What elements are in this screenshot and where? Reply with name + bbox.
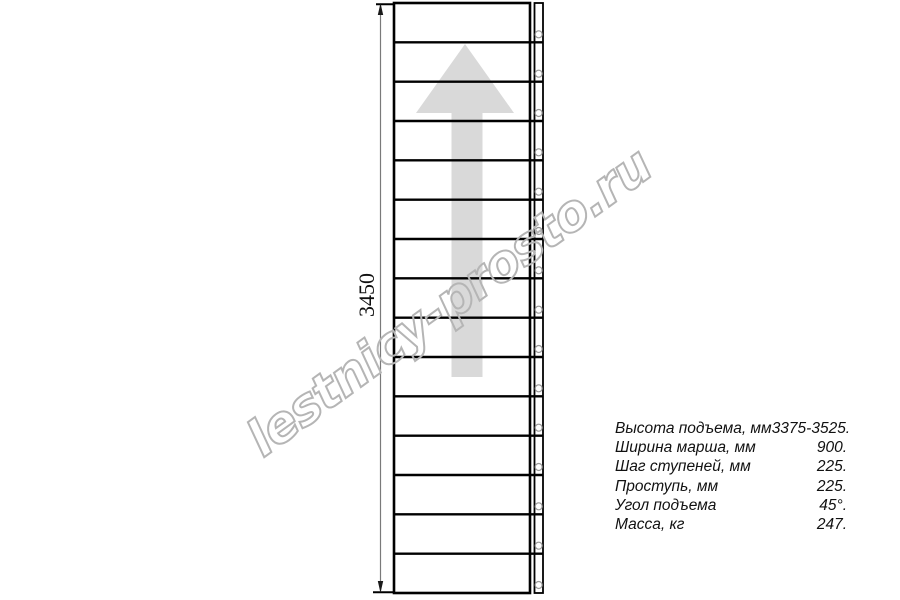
spec-label: Угол подъема	[615, 496, 716, 515]
spec-row-tread: Проступь, мм 225.	[615, 477, 847, 496]
baluster-post-icon	[535, 31, 542, 38]
spec-label: Высота подъема, мм	[615, 419, 772, 438]
spec-label: Ширина марша, мм	[615, 438, 756, 457]
spec-row-height: Высота подъема, мм 3375-3525.	[615, 419, 847, 438]
baluster-post-icon	[535, 464, 542, 471]
spec-value: 247.	[817, 515, 847, 534]
baluster-post-icon	[535, 70, 542, 77]
spec-value: 225.	[817, 477, 847, 496]
spec-row-angle: Угол подъема 45°.	[615, 496, 847, 515]
baluster-post-icon	[535, 267, 542, 274]
baluster-post-icon	[535, 306, 542, 313]
dimension-label: 3450	[354, 273, 380, 317]
spec-row-width: Ширина марша, мм 900.	[615, 438, 847, 457]
baluster-post-icon	[535, 424, 542, 431]
baluster-post-icon	[535, 385, 542, 392]
specs-table: Высота подъема, мм 3375-3525. Ширина мар…	[615, 419, 847, 534]
dimension-arrow-down-icon	[378, 581, 383, 593]
spec-value: 225.	[817, 457, 847, 476]
baluster-post-icon	[535, 346, 542, 353]
stair-drawing-canvas: 3450 lestnicy-prosto.ru Высота подъема, …	[0, 0, 900, 600]
spec-label: Проступь, мм	[615, 477, 718, 496]
baluster-post-icon	[535, 188, 542, 195]
spec-value: 45°.	[819, 496, 847, 515]
spec-value: 3375-3525.	[772, 419, 850, 438]
baluster-post-icon	[535, 228, 542, 235]
spec-label: Масса, кг	[615, 515, 684, 534]
baluster-post-icon	[535, 582, 542, 589]
baluster-post-icon	[535, 149, 542, 156]
baluster-post-icon	[535, 503, 542, 510]
spec-value: 900.	[817, 438, 847, 457]
spec-row-step-pitch: Шаг ступеней, мм 225.	[615, 457, 847, 476]
spec-label: Шаг ступеней, мм	[615, 457, 751, 476]
spec-row-mass: Масса, кг 247.	[615, 515, 847, 534]
baluster-post-icon	[535, 542, 542, 549]
baluster-post-icon	[535, 110, 542, 117]
